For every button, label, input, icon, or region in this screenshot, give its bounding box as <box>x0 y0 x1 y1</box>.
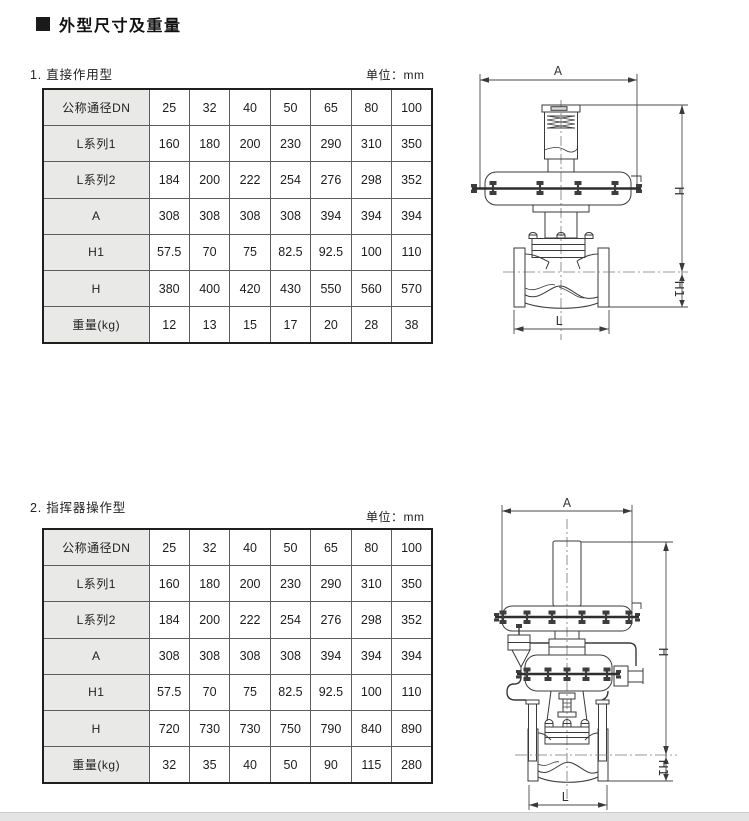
value-cell: 840 <box>351 710 391 746</box>
value-cell: 12 <box>149 307 189 344</box>
label-h1: H1 <box>656 760 670 777</box>
value-cell: 276 <box>311 162 351 198</box>
row-header-cell: H1 <box>43 674 149 710</box>
row-header-cell: L系列2 <box>43 602 149 638</box>
value-cell: 40 <box>230 89 270 126</box>
value-cell: 32 <box>149 747 189 784</box>
value-cell: 40 <box>230 529 270 566</box>
table-row: 公称通径DN253240506580100 <box>43 89 432 126</box>
value-cell: 200 <box>230 566 270 602</box>
value-cell: 254 <box>270 602 310 638</box>
value-cell: 790 <box>311 710 351 746</box>
title-square-icon <box>36 17 50 31</box>
table-row: H157.5707582.592.5100110 <box>43 674 432 710</box>
value-cell: 310 <box>351 566 391 602</box>
label-h: H <box>672 186 686 195</box>
value-cell: 82.5 <box>270 234 310 270</box>
value-cell: 308 <box>189 638 229 674</box>
value-cell: 394 <box>392 638 432 674</box>
section1-heading: 1. 直接作用型 <box>30 64 113 83</box>
row-header-cell: L系列2 <box>43 162 149 198</box>
table-row: 重量(kg)3235405090115280 <box>43 747 432 784</box>
value-cell: 100 <box>392 89 432 126</box>
row-header-cell: 公称通径DN <box>43 529 149 566</box>
section2-unit-label: 单位：mm <box>366 508 425 525</box>
row-header-cell: 重量(kg) <box>43 747 149 784</box>
value-cell: 200 <box>189 602 229 638</box>
label-l: L <box>562 790 569 804</box>
value-cell: 65 <box>311 89 351 126</box>
row-header-cell: L系列1 <box>43 126 149 162</box>
value-cell: 70 <box>189 674 229 710</box>
pilot-operated-dimension-table: 公称通径DN253240506580100L系列1160180200230290… <box>42 528 433 784</box>
row-header-cell: A <box>43 638 149 674</box>
page-title: 外型尺寸及重量 <box>36 12 182 36</box>
value-cell: 160 <box>149 126 189 162</box>
table-row: 公称通径DN253240506580100 <box>43 529 432 566</box>
value-cell: 75 <box>230 674 270 710</box>
table-row: L系列2184200222254276298352 <box>43 602 432 638</box>
value-cell: 730 <box>230 710 270 746</box>
value-cell: 308 <box>149 638 189 674</box>
value-cell: 13 <box>189 307 229 344</box>
value-cell: 230 <box>270 566 310 602</box>
direct-acting-valve-diagram: A H H1 L <box>445 48 745 348</box>
value-cell: 298 <box>351 602 391 638</box>
table-row: L系列2184200222254276298352 <box>43 162 432 198</box>
pilot-operated-valve-diagram: A H H1 L <box>445 497 745 812</box>
value-cell: 32 <box>189 89 229 126</box>
page-title-text: 外型尺寸及重量 <box>59 12 182 36</box>
label-l: L <box>556 314 563 328</box>
section1-unit-label: 单位：mm <box>366 66 425 83</box>
value-cell: 400 <box>189 270 229 306</box>
value-cell: 160 <box>149 566 189 602</box>
value-cell: 100 <box>351 234 391 270</box>
value-cell: 80 <box>351 89 391 126</box>
value-cell: 92.5 <box>311 674 351 710</box>
value-cell: 25 <box>149 529 189 566</box>
value-cell: 180 <box>189 126 229 162</box>
value-cell: 200 <box>230 126 270 162</box>
value-cell: 290 <box>311 566 351 602</box>
value-cell: 308 <box>270 638 310 674</box>
label-a: A <box>563 497 572 510</box>
pilot-diaphragm-chamber <box>517 655 620 691</box>
value-cell: 298 <box>351 162 391 198</box>
value-cell: 80 <box>351 529 391 566</box>
value-cell: 110 <box>392 674 432 710</box>
value-cell: 90 <box>311 747 351 784</box>
value-cell: 230 <box>270 126 310 162</box>
value-cell: 15 <box>230 307 270 344</box>
value-cell: 280 <box>392 747 432 784</box>
row-header-cell: A <box>43 198 149 234</box>
value-cell: 70 <box>189 234 229 270</box>
value-cell: 222 <box>230 162 270 198</box>
value-cell: 308 <box>189 198 229 234</box>
value-cell: 570 <box>392 270 432 306</box>
value-cell: 308 <box>149 198 189 234</box>
table-row: H380400420430550560570 <box>43 270 432 306</box>
section2-heading: 2. 指挥器操作型 <box>30 497 126 516</box>
row-header-cell: 重量(kg) <box>43 307 149 344</box>
label-h: H <box>656 647 670 656</box>
value-cell: 35 <box>189 747 229 784</box>
value-cell: 352 <box>392 602 432 638</box>
value-cell: 254 <box>270 162 310 198</box>
value-cell: 200 <box>189 162 229 198</box>
value-cell: 276 <box>311 602 351 638</box>
value-cell: 394 <box>392 198 432 234</box>
value-cell: 394 <box>311 198 351 234</box>
table-row: H720730730750790840890 <box>43 710 432 746</box>
table-row: 重量(kg)12131517202838 <box>43 307 432 344</box>
value-cell: 115 <box>351 747 391 784</box>
table-row: A308308308308394394394 <box>43 638 432 674</box>
table-row: L系列1160180200230290310350 <box>43 566 432 602</box>
value-cell: 394 <box>311 638 351 674</box>
value-cell: 57.5 <box>149 674 189 710</box>
value-cell: 17 <box>270 307 310 344</box>
value-cell: 110 <box>392 234 432 270</box>
value-cell: 75 <box>230 234 270 270</box>
row-header-cell: 公称通径DN <box>43 89 149 126</box>
value-cell: 310 <box>351 126 391 162</box>
value-cell: 350 <box>392 126 432 162</box>
value-cell: 308 <box>230 638 270 674</box>
label-a: A <box>554 64 563 78</box>
value-cell: 50 <box>270 89 310 126</box>
table-row: L系列1160180200230290310350 <box>43 126 432 162</box>
value-cell: 50 <box>270 529 310 566</box>
value-cell: 32 <box>189 529 229 566</box>
value-cell: 352 <box>392 162 432 198</box>
value-cell: 100 <box>392 529 432 566</box>
value-cell: 25 <box>149 89 189 126</box>
row-header-cell: H <box>43 270 149 306</box>
direct-acting-dimension-table: 公称通径DN253240506580100L系列1160180200230290… <box>42 88 433 344</box>
value-cell: 750 <box>270 710 310 746</box>
value-cell: 20 <box>311 307 351 344</box>
value-cell: 100 <box>351 674 391 710</box>
value-cell: 560 <box>351 270 391 306</box>
value-cell: 394 <box>351 198 391 234</box>
value-cell: 28 <box>351 307 391 344</box>
value-cell: 730 <box>189 710 229 746</box>
value-cell: 430 <box>270 270 310 306</box>
row-header-cell: H1 <box>43 234 149 270</box>
valve-body <box>528 729 608 782</box>
value-cell: 65 <box>311 529 351 566</box>
table-row: H157.5707582.592.5100110 <box>43 234 432 270</box>
row-header-cell: H <box>43 710 149 746</box>
table-row: A308308308308394394394 <box>43 198 432 234</box>
value-cell: 550 <box>311 270 351 306</box>
value-cell: 184 <box>149 602 189 638</box>
value-cell: 50 <box>270 747 310 784</box>
value-cell: 82.5 <box>270 674 310 710</box>
value-cell: 890 <box>392 710 432 746</box>
value-cell: 420 <box>230 270 270 306</box>
value-cell: 308 <box>230 198 270 234</box>
row-header-cell: L系列1 <box>43 566 149 602</box>
value-cell: 184 <box>149 162 189 198</box>
dimension-a <box>480 74 637 188</box>
value-cell: 222 <box>230 602 270 638</box>
value-cell: 40 <box>230 747 270 784</box>
value-cell: 720 <box>149 710 189 746</box>
value-cell: 57.5 <box>149 234 189 270</box>
value-cell: 308 <box>270 198 310 234</box>
value-cell: 180 <box>189 566 229 602</box>
label-h1: H1 <box>672 281 686 298</box>
value-cell: 290 <box>311 126 351 162</box>
value-cell: 394 <box>351 638 391 674</box>
value-cell: 92.5 <box>311 234 351 270</box>
value-cell: 380 <box>149 270 189 306</box>
value-cell: 38 <box>392 307 432 344</box>
value-cell: 350 <box>392 566 432 602</box>
